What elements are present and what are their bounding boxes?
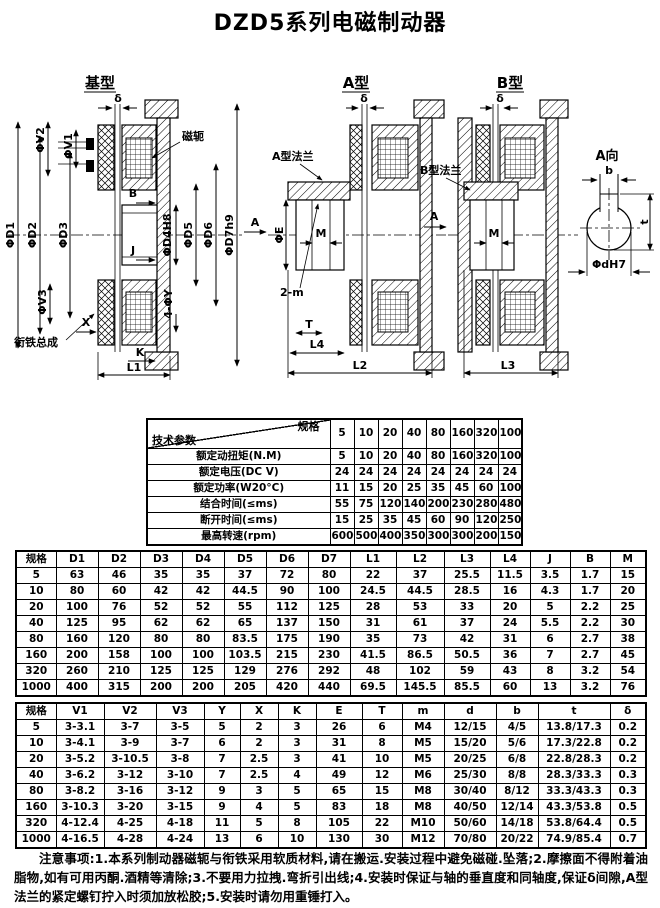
cell: 36 <box>490 648 530 664</box>
cell: 55 <box>224 600 266 616</box>
type-a-title: A型 <box>343 74 370 92</box>
cell: 8 <box>278 816 316 832</box>
cell: 4-28 <box>104 832 156 849</box>
cell: 2 <box>240 720 278 736</box>
cell: 59 <box>444 664 490 680</box>
cell: 125 <box>56 616 98 632</box>
cell: 280 <box>474 497 498 513</box>
cell: 4/5 <box>496 720 538 736</box>
col-header: 1000 <box>498 419 522 449</box>
cell: 10 <box>362 752 402 768</box>
cell: 14/18 <box>496 816 538 832</box>
cell: 52 <box>140 600 182 616</box>
cell: 7 <box>204 752 240 768</box>
cell: 400 <box>56 680 98 697</box>
cell: 10 <box>354 449 378 465</box>
cell: 4-24 <box>156 832 204 849</box>
cell: 5 <box>330 449 354 465</box>
cell: 140 <box>402 497 426 513</box>
cell: 24 <box>474 465 498 481</box>
table-row: 103-4.13-93-7623318M515/205/617.3/22.80.… <box>16 736 646 752</box>
cell: 100 <box>308 584 350 600</box>
cell: 4 <box>240 800 278 816</box>
cell: 130 <box>316 832 362 849</box>
cell: 60 <box>474 481 498 497</box>
dim-D6: ΦD6 <box>202 222 215 248</box>
cell: 12 <box>362 768 402 784</box>
row-header: 1000 <box>16 680 56 697</box>
cell: 3-12 <box>156 784 204 800</box>
cell: 37 <box>396 568 444 584</box>
col-header: L3 <box>444 551 490 568</box>
dim-J: J <box>130 244 135 257</box>
col-header: D3 <box>140 551 182 568</box>
cell: 35 <box>140 568 182 584</box>
cell: 8 <box>362 736 402 752</box>
dimension-table-2: 规格V1V2V3YXKETmdbtδ53-3.13-73-5523266M412… <box>15 702 647 849</box>
cell: 20 <box>378 449 402 465</box>
table-row: 结合时间(≤ms)5575120140200230280480 <box>147 497 522 513</box>
cell: 28.5 <box>444 584 490 600</box>
table-row: 80160120808083.51751903573423162.738 <box>16 632 646 648</box>
cell: 24.5 <box>350 584 396 600</box>
cell: 9 <box>204 800 240 816</box>
cell: 3-10 <box>156 768 204 784</box>
hub-bore <box>122 205 157 265</box>
cell: 3-6.2 <box>56 768 104 784</box>
cell: 315 <box>98 680 140 697</box>
corner-label-params: 技术参数 <box>152 435 196 447</box>
cell: 83 <box>316 800 362 816</box>
a-flange <box>288 182 350 200</box>
table-header-row: 规格技术参数5102040801603201000 <box>147 419 522 449</box>
cell: 60 <box>98 584 140 600</box>
dim-L3: L3 <box>501 359 516 372</box>
col-header: V2 <box>104 703 156 720</box>
row-header: 10 <box>16 584 56 600</box>
cell: 44.5 <box>224 584 266 600</box>
col-header: 160 <box>450 419 474 449</box>
cell: 205 <box>224 680 266 697</box>
cell: 0.2 <box>610 736 646 752</box>
col-header: 5 <box>330 419 354 449</box>
cell: 55 <box>330 497 354 513</box>
yoke-label: 磁轭 <box>182 129 204 143</box>
table-row: 108060424244.59010024.544.528.5164.31.72… <box>16 584 646 600</box>
cell: 15 <box>610 568 646 584</box>
table-row: 额定电压(DC V)2424242424242424 <box>147 465 522 481</box>
cell: 20/25 <box>444 752 496 768</box>
cell: 37 <box>224 568 266 584</box>
cell: 11 <box>204 816 240 832</box>
cell: 26 <box>316 720 362 736</box>
dim-B: B <box>129 187 137 200</box>
cell: 40 <box>402 449 426 465</box>
cell: 3-3.1 <box>56 720 104 736</box>
cell: 112 <box>266 600 308 616</box>
cell: 0.5 <box>610 800 646 816</box>
col-header: Y <box>204 703 240 720</box>
cell: 3.2 <box>570 680 610 697</box>
cell: 31 <box>490 632 530 648</box>
cell: 6 <box>240 832 278 849</box>
cell: 4-12.4 <box>56 816 104 832</box>
cell: 2.2 <box>570 616 610 632</box>
dim-t: t <box>638 219 651 224</box>
cell: 3-12 <box>104 768 156 784</box>
cell: 73 <box>396 632 444 648</box>
cell: 50.5 <box>444 648 490 664</box>
cell: 35 <box>426 481 450 497</box>
cell: 6 <box>362 720 402 736</box>
col-header: J <box>530 551 570 568</box>
cell: 8/8 <box>496 768 538 784</box>
page-title: DZD5系列电磁制动器 <box>0 5 660 37</box>
cell: 145.5 <box>396 680 444 697</box>
row-header: 1000 <box>16 832 56 849</box>
cell: 5 <box>530 600 570 616</box>
cell: 72 <box>266 568 308 584</box>
col-header: 10 <box>354 419 378 449</box>
cell: 50/60 <box>444 816 496 832</box>
cell: 30 <box>610 616 646 632</box>
col-header: 规格 <box>16 703 56 720</box>
cell: 210 <box>98 664 140 680</box>
cell: 3 <box>240 784 278 800</box>
cell: 100 <box>182 648 224 664</box>
dim-D1: ΦD1 <box>4 222 17 248</box>
cell: 6 <box>530 632 570 648</box>
cell: 41 <box>316 752 362 768</box>
cell: 320 <box>474 449 498 465</box>
cell: 2.7 <box>570 632 610 648</box>
cell: 13 <box>530 680 570 697</box>
cell: 5/6 <box>496 736 538 752</box>
cell: 0.2 <box>610 752 646 768</box>
diagram-type-b: B型 δ M B型法兰 <box>420 74 578 378</box>
col-header: X <box>240 703 278 720</box>
cell: 4-18 <box>156 816 204 832</box>
cell: 6000 <box>330 529 354 546</box>
cell: 22 <box>350 568 396 584</box>
cell: 24 <box>330 465 354 481</box>
cell: 90 <box>266 584 308 600</box>
diagonal-header-cell: 规格技术参数 <box>147 419 330 449</box>
cell: 5 <box>240 816 278 832</box>
cell: 24 <box>378 465 402 481</box>
cell: 230 <box>308 648 350 664</box>
cell: 9 <box>204 784 240 800</box>
cell: 4-16.5 <box>56 832 104 849</box>
col-header: 40 <box>402 419 426 449</box>
cell: 200 <box>140 680 182 697</box>
cell: 3-5 <box>156 720 204 736</box>
cell: 42 <box>444 632 490 648</box>
cell: 80 <box>56 584 98 600</box>
row-header: 40 <box>16 768 56 784</box>
diagram-view-a: A向 b t ΦdH7 <box>568 148 654 276</box>
lead-terminal <box>86 138 94 150</box>
cell: 3-8.2 <box>56 784 104 800</box>
type-a-delta: δ <box>360 92 368 105</box>
table-row: 最高转速(rpm)6000500040003500300030002000150… <box>147 529 522 546</box>
cell: 10 <box>278 832 316 849</box>
cell: 13.8/17.3 <box>538 720 610 736</box>
cell: 125 <box>140 664 182 680</box>
cell: 12/15 <box>444 720 496 736</box>
cell: 62 <box>140 616 182 632</box>
table-row: 额定动扭矩(N.M)5102040801603201000 <box>147 449 522 465</box>
row-header: 20 <box>16 600 56 616</box>
cell: 42 <box>140 584 182 600</box>
cell: 11.5 <box>490 568 530 584</box>
cell: 129 <box>224 664 266 680</box>
cell: 190 <box>308 632 350 648</box>
cell: M12 <box>402 832 444 849</box>
cell: 25/30 <box>444 768 496 784</box>
cell: 6/8 <box>496 752 538 768</box>
cell: 160 <box>56 632 98 648</box>
cell: M6 <box>402 768 444 784</box>
cell: 2.2 <box>570 600 610 616</box>
cell: 65 <box>224 616 266 632</box>
base-delta-label: δ <box>114 92 122 105</box>
coil <box>126 138 152 178</box>
row-header: 320 <box>16 664 56 680</box>
cell: 0.3 <box>610 768 646 784</box>
cell: M10 <box>402 816 444 832</box>
col-header: 320 <box>474 419 498 449</box>
table-row: 3204-12.44-254-18115810522M1050/6014/185… <box>16 816 646 832</box>
cell: 35 <box>182 568 224 584</box>
row-header: 最高转速(rpm) <box>147 529 330 546</box>
cell: 80 <box>182 632 224 648</box>
cell: 200 <box>426 497 450 513</box>
cell: 1.7 <box>570 584 610 600</box>
lead-terminal <box>86 160 94 172</box>
cell: 3-8 <box>156 752 204 768</box>
cell: 15 <box>330 513 354 529</box>
cell: 75 <box>354 497 378 513</box>
cell: 102 <box>396 664 444 680</box>
col-header: D7 <box>308 551 350 568</box>
cell: M4 <box>402 720 444 736</box>
cell: 3-10.5 <box>104 752 156 768</box>
row-header: 5 <box>16 720 56 736</box>
col-header: D4 <box>182 551 224 568</box>
cell: 4-25 <box>104 816 156 832</box>
cell: 42 <box>182 584 224 600</box>
cell: 103.5 <box>224 648 266 664</box>
cell: 54 <box>610 664 646 680</box>
cell: 260 <box>56 664 98 680</box>
cell: 150 <box>308 616 350 632</box>
view-arrow-a-right: A <box>430 210 439 223</box>
cell: 0.2 <box>610 720 646 736</box>
cell: 90 <box>450 513 474 529</box>
dim-4Y: 4-ΦY <box>162 288 175 319</box>
type-b-delta: δ <box>496 92 504 105</box>
cell: 3-16 <box>104 784 156 800</box>
col-header: B <box>570 551 610 568</box>
cell: 45 <box>610 648 646 664</box>
dim-T: T <box>305 318 313 331</box>
cell: 24 <box>450 465 474 481</box>
cell: 18 <box>362 800 402 816</box>
technical-parameters-table: 规格技术参数5102040801603201000额定动扭矩(N.M)51020… <box>146 418 523 546</box>
view-a-title: A向 <box>595 148 618 164</box>
table-row: 10004-16.54-284-241361013030M1270/8020/2… <box>16 832 646 849</box>
col-header: D1 <box>56 551 98 568</box>
table-row: 803-8.23-163-129356515M830/408/1233.3/43… <box>16 784 646 800</box>
col-header: 20 <box>378 419 402 449</box>
view-arrow-a-left: A <box>251 216 260 229</box>
cell: 440 <box>308 680 350 697</box>
dim-D7h9: ΦD7h9 <box>223 214 236 256</box>
cell: 35 <box>378 513 402 529</box>
cell: 24 <box>490 616 530 632</box>
col-header: T <box>362 703 402 720</box>
cell: 74.9/85.4 <box>538 832 610 849</box>
cell: 65 <box>316 784 362 800</box>
cell: 6 <box>204 736 240 752</box>
cell: 0.3 <box>610 784 646 800</box>
datasheet-page: DZD5系列电磁制动器 基型 δ <box>0 0 660 908</box>
cell: M8 <box>402 800 444 816</box>
cell: 100 <box>140 648 182 664</box>
cell: 48 <box>350 664 396 680</box>
cell: 15/20 <box>444 736 496 752</box>
cell: 38 <box>610 632 646 648</box>
cell: 8/12 <box>496 784 538 800</box>
cell: 76 <box>98 600 140 616</box>
col-header: L4 <box>490 551 530 568</box>
col-header: V3 <box>156 703 204 720</box>
cell: 28.3/33.3 <box>538 768 610 784</box>
cell: M5 <box>402 736 444 752</box>
dim-M-b: M <box>489 227 500 240</box>
armature <box>98 125 114 190</box>
dim-D3: ΦD3 <box>57 222 70 248</box>
cell: 158 <box>98 648 140 664</box>
cell: 22 <box>362 816 402 832</box>
base-title: 基型 <box>84 74 115 92</box>
col-header: D5 <box>224 551 266 568</box>
row-header: 5 <box>16 568 56 584</box>
cell: 43 <box>490 664 530 680</box>
dim-M: M <box>316 227 327 240</box>
dim-D5: ΦD5 <box>182 222 195 248</box>
diagram-base: 基型 δ <box>4 74 242 380</box>
cell: 125 <box>308 600 350 616</box>
type-b-title: B型 <box>497 74 523 92</box>
cell: 3-5.2 <box>56 752 104 768</box>
cell: 7 <box>530 648 570 664</box>
cell: 420 <box>266 680 308 697</box>
diagram-type-a: A型 δ M ΦE A <box>244 74 446 378</box>
table-row: 53-3.13-73-5523266M412/154/513.8/17.30.2 <box>16 720 646 736</box>
row-header: 10 <box>16 736 56 752</box>
dim-b: b <box>605 164 613 177</box>
cell: 5 <box>278 800 316 816</box>
cell: 40/50 <box>444 800 496 816</box>
col-header: δ <box>610 703 646 720</box>
col-header: t <box>538 703 610 720</box>
dimension-table-1: 规格D1D2D3D4D5D6D7L1L2L3L4JBM5634635353772… <box>15 550 647 697</box>
cell: 43.3/53.8 <box>538 800 610 816</box>
cell: 28 <box>350 600 396 616</box>
cell: 31 <box>350 616 396 632</box>
table-row: 1603-10.33-203-159458318M840/5012/1443.3… <box>16 800 646 816</box>
col-header: L1 <box>350 551 396 568</box>
cell: 3 <box>278 736 316 752</box>
cell: 215 <box>266 648 308 664</box>
cell: 4000 <box>378 529 402 546</box>
corner-label-spec: 规格 <box>298 421 320 433</box>
cell: 105 <box>316 816 362 832</box>
cell: 4.3 <box>530 584 570 600</box>
cell: 22.8/28.3 <box>538 752 610 768</box>
col-header: d <box>444 703 496 720</box>
col-header: m <box>402 703 444 720</box>
table-row: 160200158100100103.521523041.586.550.536… <box>16 648 646 664</box>
cell: 24 <box>426 465 450 481</box>
cell: 200 <box>182 680 224 697</box>
cell: 3000 <box>450 529 474 546</box>
cell: 63 <box>56 568 98 584</box>
cell: 0.7 <box>610 832 646 849</box>
cell: 3.5 <box>530 568 570 584</box>
cell: 61 <box>396 616 444 632</box>
cell: 37 <box>444 616 490 632</box>
cell: 53 <box>396 600 444 616</box>
cell: M8 <box>402 784 444 800</box>
cell: 24 <box>402 465 426 481</box>
cell: 60 <box>490 680 530 697</box>
cell: 5 <box>204 720 240 736</box>
cell: 24 <box>498 465 522 481</box>
cell: 44.5 <box>396 584 444 600</box>
row-header: 额定动扭矩(N.M) <box>147 449 330 465</box>
cell: 20 <box>378 481 402 497</box>
cell: 25 <box>354 513 378 529</box>
cell: 20 <box>610 584 646 600</box>
cell: 80 <box>140 632 182 648</box>
table-row: 额定功率(W20°C)11152025354560100 <box>147 481 522 497</box>
armature-label: 衔铁总成 <box>14 335 58 349</box>
cell: 3-7 <box>104 720 156 736</box>
cell: 12/14 <box>496 800 538 816</box>
table-row: 4012595626265137150316137245.52.230 <box>16 616 646 632</box>
cell: 69.5 <box>350 680 396 697</box>
cell: 175 <box>266 632 308 648</box>
col-header: L2 <box>396 551 444 568</box>
row-header: 160 <box>16 800 56 816</box>
cell: 2 <box>240 736 278 752</box>
row-header: 80 <box>16 784 56 800</box>
cell: 20/22 <box>496 832 538 849</box>
cell: 33 <box>444 600 490 616</box>
cell: 62 <box>182 616 224 632</box>
row-header: 20 <box>16 752 56 768</box>
cell: 80 <box>426 449 450 465</box>
cell: 100 <box>56 600 98 616</box>
row-header: 160 <box>16 648 56 664</box>
cell: 17.3/22.8 <box>538 736 610 752</box>
cell: 3 <box>278 720 316 736</box>
col-header: E <box>316 703 362 720</box>
row-header: 断开时间(≤ms) <box>147 513 330 529</box>
